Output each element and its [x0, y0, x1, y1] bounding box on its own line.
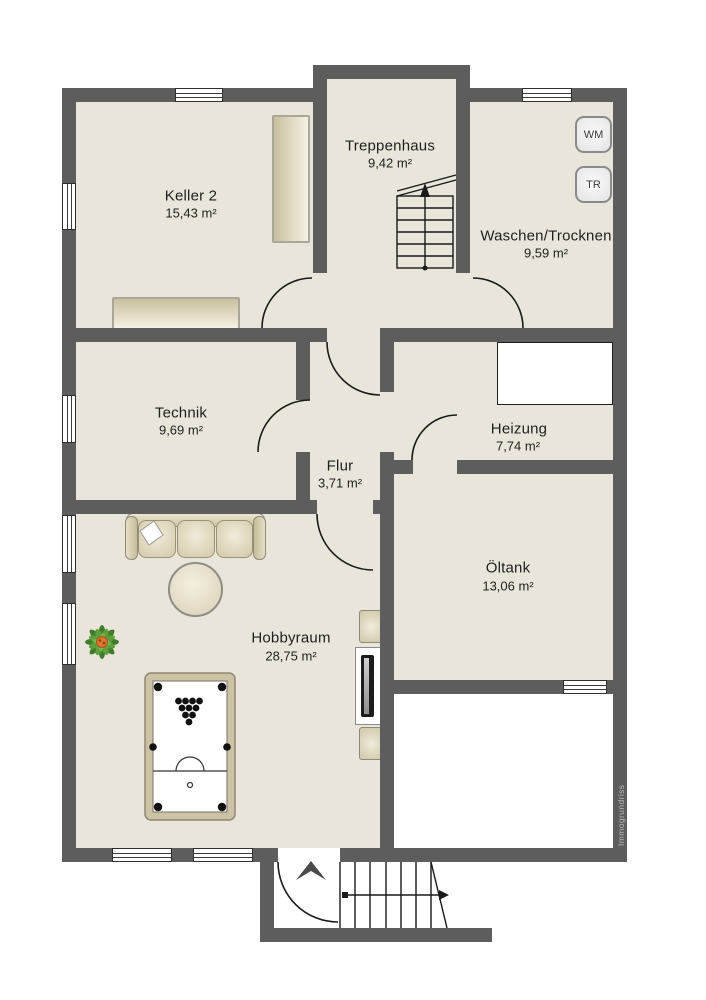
- wall: [613, 88, 627, 862]
- room-area-heizung: 7,74 m²: [496, 439, 540, 454]
- washing-machine-label: WM: [584, 129, 604, 141]
- window: [193, 848, 253, 862]
- room-name-hobbyraum: Hobbyraum: [251, 630, 330, 647]
- staircase-exterior: [340, 862, 449, 928]
- wall: [62, 500, 317, 514]
- wall: [394, 328, 613, 342]
- wall: [394, 460, 413, 474]
- wall: [313, 79, 327, 273]
- sofa-cushion: [216, 520, 253, 558]
- washing-machine: WM: [575, 116, 612, 153]
- floor-plan: WM TR: [0, 0, 706, 1000]
- shelf-vertical: [272, 115, 310, 243]
- sofa-cushion: [138, 520, 176, 558]
- room-name-technik: Technik: [155, 405, 207, 422]
- room-name-keller2: Keller 2: [165, 188, 217, 205]
- watermark-text: Immogrundriss: [616, 785, 626, 846]
- floor-staircase-bump: [327, 79, 456, 102]
- room-area-technik: 9,69 m²: [159, 423, 203, 438]
- dryer: TR: [575, 166, 612, 203]
- sideboard-horizontal: [112, 297, 240, 330]
- room-name-heizung: Heizung: [491, 421, 547, 438]
- window: [522, 88, 572, 102]
- wall: [456, 79, 470, 273]
- sofa-cushion: [177, 520, 215, 558]
- room-area-keller2: 15,43 m²: [165, 206, 216, 221]
- floor-exterior-room: [394, 694, 613, 848]
- wall: [296, 452, 310, 500]
- wall: [312, 328, 327, 342]
- window: [563, 680, 607, 694]
- room-area-hobbyraum: 28,75 m²: [265, 649, 316, 664]
- wall: [380, 328, 394, 392]
- wall: [260, 928, 492, 942]
- door-arc-entrance: [278, 862, 338, 922]
- wall: [457, 460, 613, 474]
- wall: [313, 65, 470, 79]
- room-area-waschen-trocknen: 9,59 m²: [524, 246, 568, 261]
- wall: [260, 862, 274, 928]
- window: [62, 515, 76, 573]
- room-area-oeltank: 13,06 m²: [482, 579, 533, 594]
- window: [62, 395, 76, 443]
- sofa-armrest-left: [125, 516, 138, 560]
- room-name-flur: Flur: [327, 458, 354, 475]
- heating-unit: [497, 342, 613, 405]
- sofa-armrest-right: [253, 516, 266, 560]
- window: [175, 88, 223, 102]
- room-name-waschen-trocknen: Waschen/Trocknen: [480, 228, 611, 245]
- wall: [373, 500, 394, 514]
- window: [112, 848, 172, 862]
- entrance-arrow-icon: [296, 861, 326, 880]
- wall: [340, 848, 627, 862]
- window: [62, 603, 76, 665]
- room-area-flur: 3,71 m²: [318, 476, 362, 491]
- window: [62, 183, 76, 230]
- room-name-oeltank: Öltank: [486, 560, 531, 577]
- round-table: [168, 562, 223, 617]
- wall: [62, 328, 315, 342]
- room-name-treppenhaus: Treppenhaus: [345, 138, 435, 155]
- wall: [296, 342, 310, 400]
- dryer-label: TR: [586, 179, 601, 191]
- room-area-treppenhaus: 9,42 m²: [368, 156, 412, 171]
- tv-screen-glass: [364, 658, 369, 714]
